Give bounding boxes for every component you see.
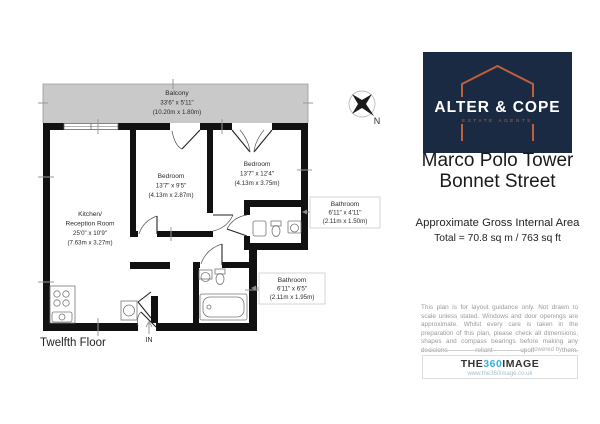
brand-the: THE bbox=[461, 358, 484, 370]
bathroom-fixtures bbox=[199, 269, 247, 320]
entrance-label: IN bbox=[146, 337, 153, 344]
svg-text:(2.11m x 1.50m): (2.11m x 1.50m) bbox=[323, 218, 368, 225]
agency-logo: ALTER & COPE ESTATE AGENTS bbox=[423, 52, 572, 153]
logo-tagline: ESTATE AGENTS bbox=[430, 118, 565, 123]
property-title: Marco Polo Tower Bonnet Street bbox=[408, 150, 587, 192]
bedroom2-label: Bedroom 13'7" x 12'4" (4.13m x 3.75m) bbox=[234, 161, 279, 187]
compass-north-label: N bbox=[374, 116, 381, 126]
logo-text-band: ALTER & COPE ESTATE AGENTS bbox=[430, 97, 565, 124]
svg-text:(4.13m x 2.87m): (4.13m x 2.87m) bbox=[148, 192, 193, 199]
compass-icon: N bbox=[349, 91, 380, 126]
bedroom1-label: Bedroom 13'7" x 9'5" (4.13m x 2.87m) bbox=[148, 173, 193, 199]
ensuite-fixtures bbox=[253, 221, 301, 237]
the360image-wordmark: THE360IMAGE bbox=[423, 358, 577, 370]
brand-image: IMAGE bbox=[502, 358, 539, 370]
powered-by-label: powered by bbox=[531, 347, 562, 353]
area-block: Approximate Gross Internal Area Total = … bbox=[408, 217, 587, 244]
svg-text:Bedroom: Bedroom bbox=[158, 173, 185, 180]
the360image-logo: THE360IMAGE www.the360image.co.uk bbox=[422, 355, 578, 379]
the360image-url: www.the360image.co.uk bbox=[423, 371, 577, 377]
area-heading: Approximate Gross Internal Area bbox=[408, 217, 587, 229]
divider-line bbox=[422, 350, 527, 351]
svg-text:13'7" x 9'5": 13'7" x 9'5" bbox=[156, 183, 187, 190]
logo-name: ALTER & COPE bbox=[430, 99, 565, 116]
floorplan-page: IN N Balcony 33'6" x 5'11" (10.20m x 1.8… bbox=[0, 0, 600, 424]
ensuite-bathroom-label: Bathroom 6'11" x 4'11" (2.11m x 1.50m) bbox=[302, 197, 380, 228]
svg-text:6'11" x 6'5": 6'11" x 6'5" bbox=[277, 286, 307, 293]
property-title-line1: Marco Polo Tower bbox=[408, 150, 587, 171]
svg-text:33'6" x 5'11": 33'6" x 5'11" bbox=[160, 100, 193, 107]
property-title-line2: Bonnet Street bbox=[408, 171, 587, 192]
svg-text:Bedroom: Bedroom bbox=[244, 161, 271, 168]
svg-text:(2.11m x 1.95m): (2.11m x 1.95m) bbox=[270, 294, 315, 301]
brand-360: 360 bbox=[483, 358, 502, 370]
kitchen-label: Kitchen/ Reception Room 25'0" x 10'9" (7… bbox=[65, 211, 115, 247]
divider-line bbox=[566, 350, 578, 351]
svg-text:Balcony: Balcony bbox=[165, 90, 189, 97]
svg-text:Bathroom: Bathroom bbox=[278, 277, 307, 284]
kitchen-fixtures bbox=[50, 286, 137, 323]
entrance-arrow-icon bbox=[146, 322, 152, 335]
svg-text:Bathroom: Bathroom bbox=[331, 201, 360, 208]
svg-text:6'11" x 4'11": 6'11" x 4'11" bbox=[328, 210, 361, 217]
svg-text:(4.13m x 3.75m): (4.13m x 3.75m) bbox=[234, 180, 279, 187]
floor-label: Twelfth Floor bbox=[40, 337, 106, 349]
powered-by-row: powered by bbox=[422, 347, 578, 353]
svg-text:(10.20m x 1.80m): (10.20m x 1.80m) bbox=[153, 109, 202, 116]
svg-text:13'7" x 12'4": 13'7" x 12'4" bbox=[240, 171, 274, 178]
svg-text:25'0" x 10'9": 25'0" x 10'9" bbox=[73, 230, 107, 237]
svg-text:(7.63m x 3.27m): (7.63m x 3.27m) bbox=[67, 240, 112, 247]
svg-text:Reception Room: Reception Room bbox=[65, 221, 115, 228]
window-icon bbox=[64, 124, 118, 130]
svg-text:Kitchen/: Kitchen/ bbox=[78, 211, 102, 218]
area-total: Total = 70.8 sq m / 763 sq ft bbox=[408, 233, 587, 244]
bathroom-label: Bathroom 6'11" x 6'5" (2.11m x 1.95m) bbox=[251, 273, 325, 304]
